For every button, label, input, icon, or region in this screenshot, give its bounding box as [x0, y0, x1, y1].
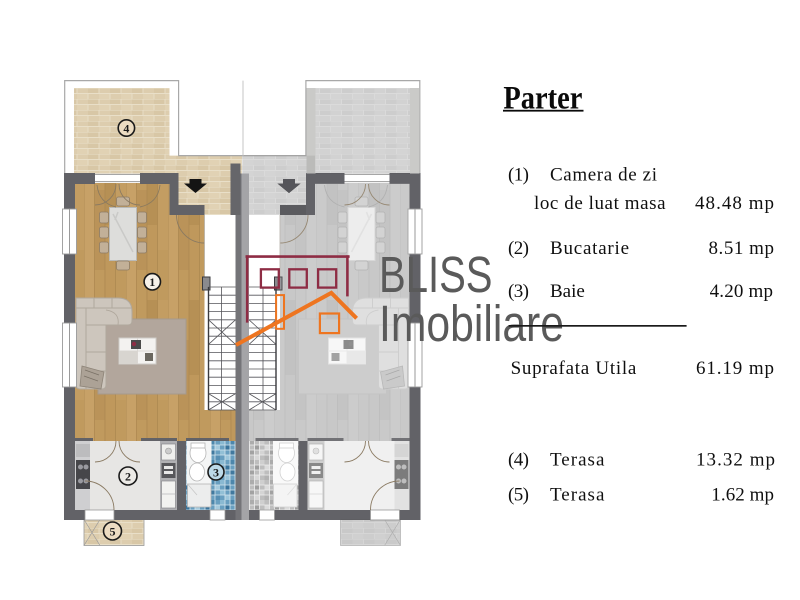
svg-text:(2): (2) — [508, 238, 529, 259]
svg-text:Terasa: Terasa — [550, 450, 605, 471]
svg-text:(1): (1) — [508, 165, 529, 186]
svg-text:2: 2 — [125, 469, 131, 483]
svg-text:loc de luat masa: loc de luat masa — [534, 193, 666, 214]
svg-text:61.19 mp: 61.19 mp — [696, 358, 774, 379]
svg-text:(5): (5) — [508, 485, 529, 506]
svg-text:48.48 mp: 48.48 mp — [695, 193, 774, 214]
svg-text:(3): (3) — [508, 281, 529, 302]
svg-text:Baie: Baie — [550, 281, 585, 302]
svg-text:4.20 mp: 4.20 mp — [710, 281, 773, 302]
svg-text:1: 1 — [149, 275, 155, 289]
svg-text:1.62 mp: 1.62 mp — [711, 485, 774, 506]
svg-text:8.51 mp: 8.51 mp — [709, 238, 775, 259]
svg-text:Suprafata Utila: Suprafata Utila — [511, 358, 637, 379]
svg-text:Terasa: Terasa — [550, 485, 605, 506]
svg-text:13.32 mp: 13.32 mp — [696, 450, 775, 471]
svg-text:Bucatarie: Bucatarie — [550, 238, 629, 259]
svg-text:Imobiliare: Imobiliare — [379, 295, 564, 352]
svg-text:Camera de zi: Camera de zi — [550, 165, 657, 186]
svg-text:(4): (4) — [508, 450, 529, 471]
svg-text:4: 4 — [123, 121, 129, 135]
svg-text:5: 5 — [110, 524, 116, 538]
svg-text:3: 3 — [213, 465, 219, 479]
